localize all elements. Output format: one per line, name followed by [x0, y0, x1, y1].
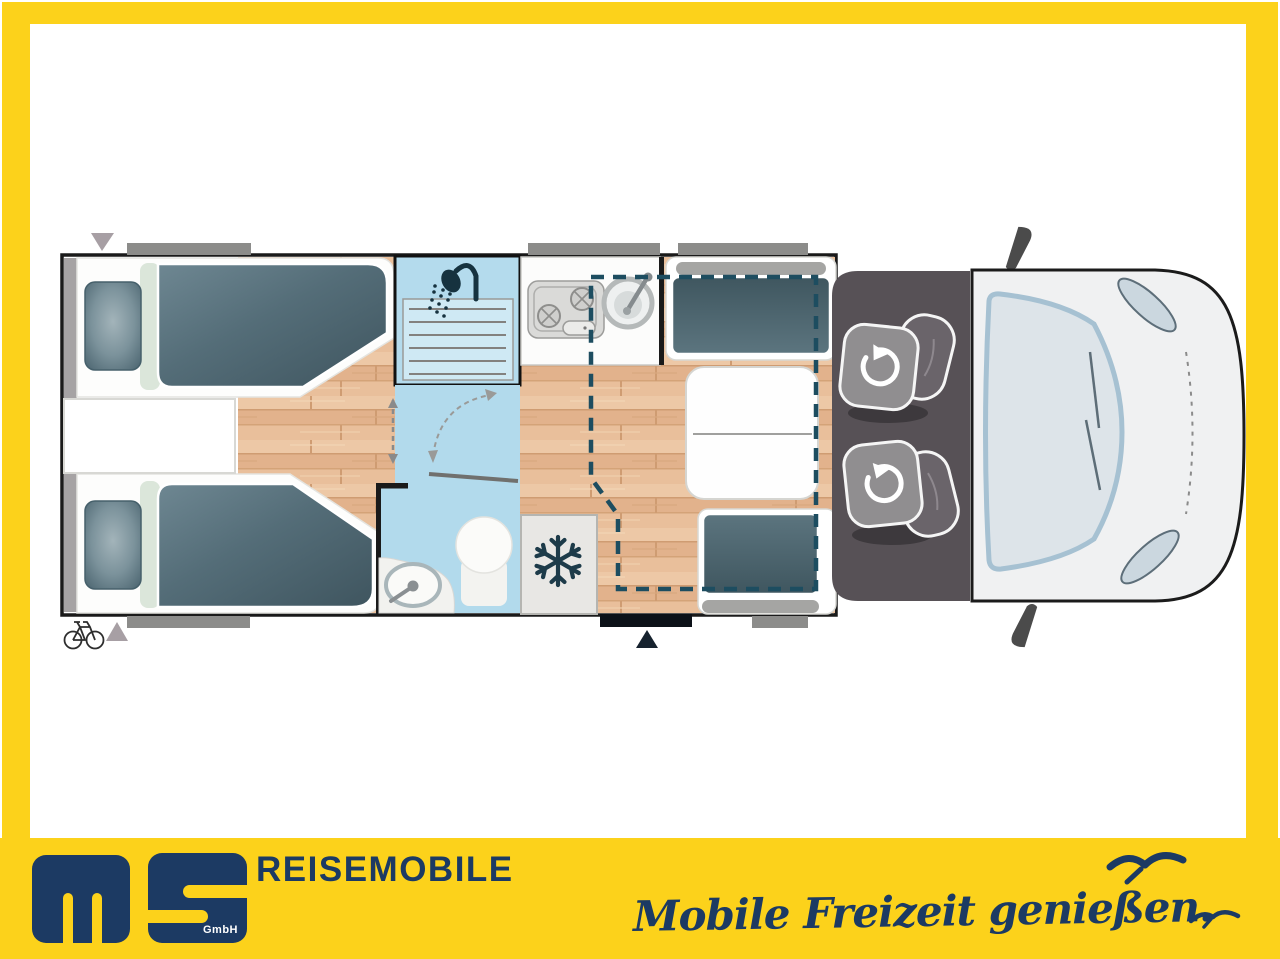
marker-triangle-top: [91, 233, 114, 251]
bench-bottom-headrest: [702, 600, 819, 613]
logo-s-slot: [148, 910, 208, 923]
entry-door: [600, 614, 692, 627]
bench-bottom-cushion: [703, 514, 818, 594]
logo-s-slot: [183, 885, 247, 898]
toilet: [456, 517, 512, 606]
dealer-listing-image: GmbH REISEMOBILE Mobile Freizeit genieße…: [0, 0, 1280, 959]
bathroom: [376, 385, 520, 615]
seagull-icon-small: [1191, 912, 1238, 927]
logo-m-slit: [63, 893, 73, 943]
gmbh-label: GmbH: [203, 924, 238, 936]
logo-s-block: GmbH: [148, 853, 247, 943]
bed-step-cabinet: [64, 399, 235, 473]
cab: [832, 225, 1244, 648]
bench-top-headrest: [676, 262, 826, 275]
bench-top-cushion: [672, 277, 830, 354]
frame-left: [2, 2, 30, 838]
marker-triangle-bottom: [106, 622, 128, 641]
shower-cabin: [395, 256, 520, 385]
windshield: [986, 294, 1123, 569]
mirror-icon: [1005, 225, 1033, 273]
bed-top-pillow: [85, 282, 141, 370]
logo-m-block: [32, 855, 130, 943]
frame-top: [2, 2, 1278, 24]
seagull-icons: [1095, 845, 1255, 945]
seagull-icon-large: [1110, 856, 1183, 882]
shower-tray: [403, 299, 513, 380]
refrigerator: [521, 515, 597, 614]
bicycle-icon: [65, 622, 104, 649]
bed-bottom-pillow: [85, 501, 141, 589]
mirror-icon: [1010, 601, 1038, 649]
logo-m-slit: [92, 893, 102, 943]
motorhome-floorplan: [50, 218, 1260, 660]
division-label: REISEMOBILE: [256, 850, 514, 890]
cab-floor: [832, 271, 970, 601]
entry-arrow-icon: [636, 630, 658, 648]
kitchen-wall: [659, 257, 664, 365]
